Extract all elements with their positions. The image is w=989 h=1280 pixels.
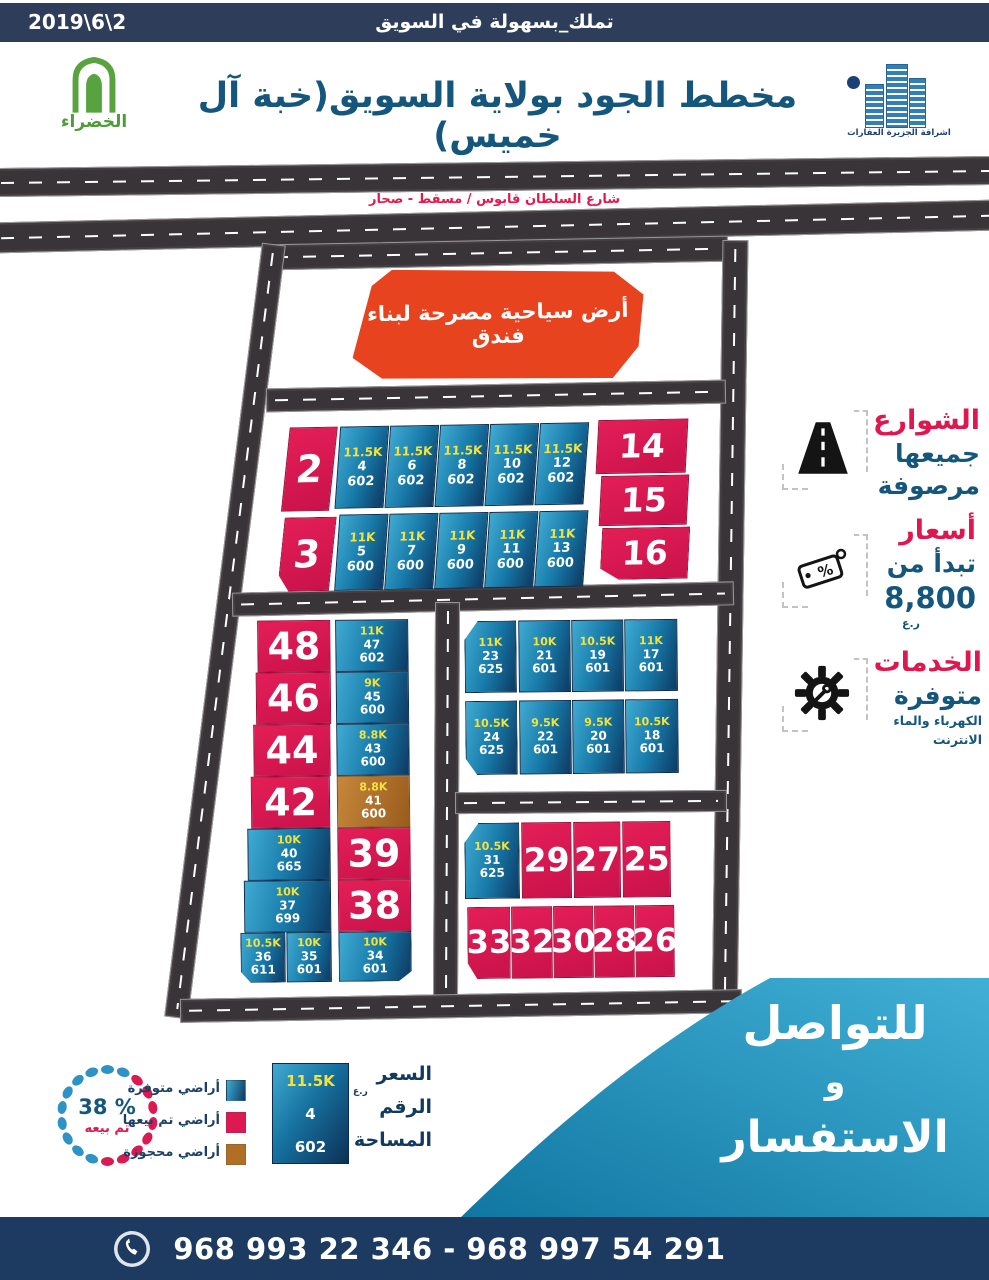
streets-legend: الشوارع جميعها مرصوفة bbox=[856, 404, 980, 503]
services-legend: الخدمات متوفرة الكهرباء والماء الانترنت bbox=[836, 646, 982, 750]
khadra-logo-text: الخضراء bbox=[44, 112, 144, 132]
plot-24: 10.5K 24 625 bbox=[465, 701, 518, 776]
sample-plot-labels: السعر الرقم المساحة bbox=[352, 1063, 432, 1162]
plot-29: 29 bbox=[521, 822, 572, 899]
company-logo: اشراقة الجزيرة العقارات bbox=[843, 60, 955, 138]
bottom-bar: 968 993 22 346 - 968 997 54 291 bbox=[0, 1217, 989, 1280]
plot-43: 8.8K 43 600 bbox=[336, 723, 410, 776]
plot-26: 26 bbox=[635, 905, 675, 977]
highway-road-north bbox=[0, 156, 989, 197]
prices-legend-icon-box: % bbox=[792, 540, 854, 598]
plot-17: 11K 17 601 bbox=[624, 619, 678, 692]
plot-28: 28 bbox=[594, 905, 635, 977]
plot-39: 39 bbox=[337, 827, 411, 880]
key-available-label: أراضي متوفرة bbox=[95, 1081, 220, 1096]
plot-44: 44 bbox=[253, 724, 331, 777]
plot-11: 11K 11 600 bbox=[484, 511, 538, 588]
key-available-swatch bbox=[226, 1080, 246, 1101]
plot-6: 11.5K 6 602 bbox=[384, 425, 439, 508]
key-reserved-swatch bbox=[226, 1144, 246, 1165]
plot-25: 25 bbox=[622, 821, 671, 897]
services-title: الخدمات bbox=[836, 646, 982, 680]
plot-23: 11K 23 625 bbox=[464, 621, 517, 694]
plot-3: 3 bbox=[277, 517, 337, 592]
sample-currency-unit: ر.ع bbox=[353, 1087, 368, 1097]
streets-legend-icon-box bbox=[792, 416, 854, 480]
key-sold-label: أراضي تم بيعها bbox=[95, 1113, 220, 1128]
plot-27: 27 bbox=[573, 821, 621, 897]
plot-31: 10.5K 31 625 bbox=[464, 823, 520, 900]
plot-10: 11.5K 10 602 bbox=[484, 423, 539, 506]
block-right-bottom: 10.5K 31 625 29 27 25 33 32 30 28 26 bbox=[457, 815, 684, 981]
plot-45: 9K 45 600 bbox=[336, 671, 410, 724]
block-top-rows: 2 11.5K 4 602 11.5K 6 602 11.5K 8 602 11… bbox=[279, 414, 702, 593]
plot-8: 11.5K 8 602 bbox=[434, 424, 489, 507]
key-sold-swatch bbox=[226, 1112, 246, 1133]
phone-numbers: 968 993 22 346 - 968 997 54 291 bbox=[173, 1232, 725, 1266]
plot-18: 10.5K 18 601 bbox=[625, 699, 679, 774]
plot-41-reserved: 8.8K 41 600 bbox=[337, 775, 411, 828]
number-label: الرقم bbox=[352, 1096, 432, 1129]
plot-12: 11.5K 12 602 bbox=[534, 422, 589, 505]
plot-4: 11.5K 4 602 bbox=[334, 426, 389, 509]
plot-14: 14 bbox=[596, 419, 689, 475]
plot-21: 10K 21 601 bbox=[518, 620, 571, 693]
company-logo-text: اشراقة الجزيرة العقارات bbox=[843, 128, 955, 138]
plot-30: 30 bbox=[553, 906, 594, 978]
street-label: شارع السلطان قابوس / مسقط - صحار bbox=[0, 192, 989, 207]
plot-46: 46 bbox=[256, 672, 332, 725]
hotel-parcel-label: أرض سياحية مصرحة لبناء فندق bbox=[352, 297, 645, 350]
plot-48: 48 bbox=[257, 620, 331, 673]
plot-36: 10.5K 36 611 bbox=[240, 932, 286, 982]
contact-block: للتواصل و الاستفسار bbox=[695, 996, 975, 1165]
slogan: تملك_بسهولة في السويق bbox=[0, 11, 989, 33]
block-left: 48 46 44 42 10K 40 665 10K 37 699 10.5K … bbox=[223, 614, 419, 988]
starting-price: 8,800 bbox=[846, 580, 976, 616]
prices-title: أسعار bbox=[846, 514, 976, 548]
page-title: مخطط الجود بولاية السويق(خبة آل خميس) bbox=[150, 76, 845, 156]
key-reserved-label: أراضي محجوزة bbox=[95, 1145, 220, 1160]
streets-title: الشوارع bbox=[856, 404, 980, 438]
block-right-top: 11K 23 625 10K 21 601 10.5K 19 601 11K 1… bbox=[459, 613, 681, 777]
plot-38: 38 bbox=[338, 879, 412, 932]
plot-42: 42 bbox=[251, 776, 331, 829]
plot-7: 11K 7 600 bbox=[384, 513, 438, 590]
plot-5: 11K 5 600 bbox=[334, 514, 388, 591]
khadra-logo: الخضراء bbox=[44, 56, 144, 132]
plot-22: 9.5K 22 601 bbox=[519, 700, 572, 775]
road-right-mid bbox=[455, 790, 727, 814]
sample-plot: 11.5K 4 602 bbox=[272, 1063, 349, 1164]
flyer-canvas: 2019\6\2 تملك_بسهولة في السويق الخضراء م… bbox=[0, 0, 989, 1280]
plot-37: 10K 37 699 bbox=[244, 880, 332, 933]
hotel-parcel: أرض سياحية مصرحة لبناء فندق bbox=[351, 265, 645, 382]
map-right-road bbox=[712, 240, 749, 1022]
sun-icon bbox=[847, 76, 860, 89]
area-label: المساحة bbox=[352, 1129, 432, 1162]
plot-2: 2 bbox=[281, 427, 338, 512]
plot-15: 15 bbox=[599, 475, 690, 527]
plot-13: 11K 13 600 bbox=[534, 510, 588, 587]
road-icon bbox=[792, 416, 854, 480]
plot-32: 32 bbox=[511, 906, 553, 978]
plot-35: 10K 35 601 bbox=[286, 932, 332, 982]
plot-40: 10K 40 665 bbox=[247, 828, 331, 881]
prices-legend: أسعار تبدأ من 8,800 ر.ع bbox=[846, 514, 976, 630]
plot-20: 9.5K 20 601 bbox=[572, 699, 625, 774]
plot-19: 10.5K 19 601 bbox=[571, 619, 624, 692]
plot-34: 10K 34 601 bbox=[338, 931, 412, 982]
plot-33: 33 bbox=[467, 907, 511, 979]
currency-unit: ر.ع bbox=[846, 617, 976, 630]
buildings-icon bbox=[843, 60, 955, 126]
price-tag-icon: % bbox=[792, 540, 852, 598]
phone-icon bbox=[113, 1230, 151, 1268]
arch-icon bbox=[61, 56, 127, 114]
plot-16: 16 bbox=[600, 527, 691, 581]
plot-47: 11K 47 602 bbox=[335, 619, 409, 672]
plot-9: 11K 9 600 bbox=[434, 512, 488, 589]
top-bar: 2019\6\2 تملك_بسهولة في السويق bbox=[0, 3, 989, 42]
road-under-hotel bbox=[266, 380, 726, 413]
